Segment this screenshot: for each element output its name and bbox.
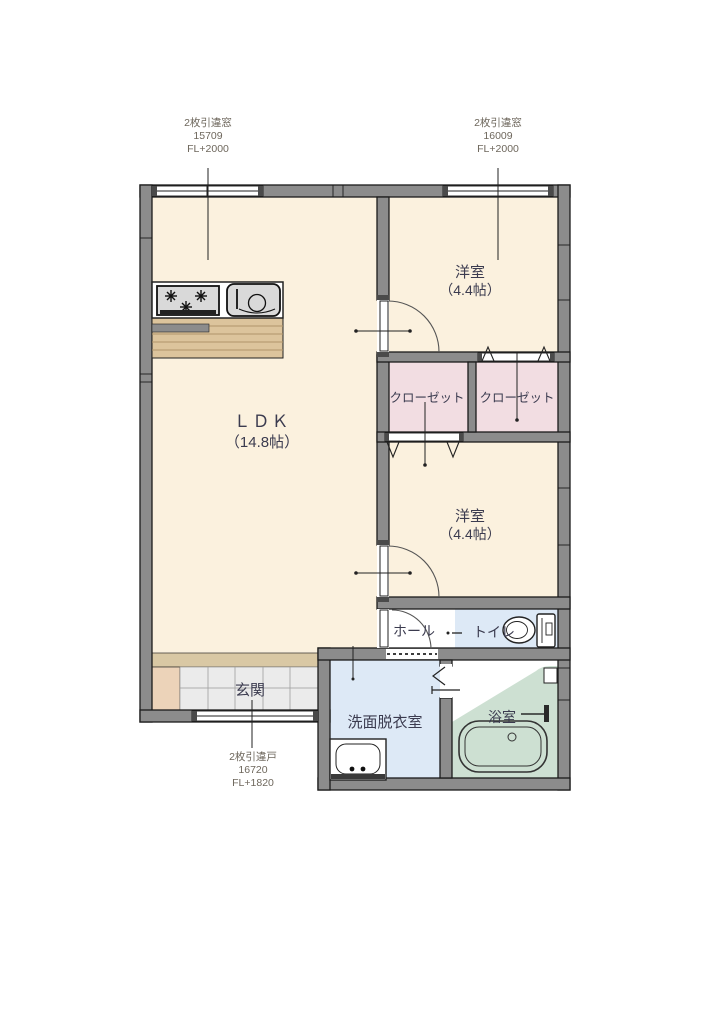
- sink-icon: [227, 284, 280, 316]
- wall-center-upper: [377, 197, 389, 300]
- closet-right-label: クローゼット: [479, 391, 554, 405]
- closet-left-label: クローゼット: [389, 391, 464, 405]
- floor-plan-page: ＬＤＫ （14.8帖） 洋室 （4.4帖） 洋室 （4.4帖） クローゼット ク…: [0, 0, 725, 1024]
- bedroom-bottom-label: 洋室: [455, 508, 485, 525]
- window-right-level: FL+2000: [477, 143, 519, 155]
- bathroom-label: 浴室: [488, 709, 516, 725]
- ldk-area-label: （14.8帖）: [225, 434, 299, 451]
- wall-washroom-top: [318, 648, 570, 660]
- kitchen-unit: [152, 282, 283, 358]
- window-left-code: 15709: [193, 130, 222, 142]
- wall-closet-divider: [468, 362, 476, 432]
- bathtub-icon: [459, 721, 547, 772]
- wall-left: [140, 185, 152, 722]
- window-right-code: 16009: [483, 130, 512, 142]
- washroom-label: 洗面脱衣室: [347, 714, 422, 731]
- entrance-step: [152, 653, 318, 667]
- floor-plan-canvas: ＬＤＫ （14.8帖） 洋室 （4.4帖） 洋室 （4.4帖） クローゼット ク…: [0, 0, 725, 1024]
- entry-door-code: 16720: [238, 764, 267, 776]
- bedroom-top-area-label: （4.4帖）: [439, 282, 500, 298]
- bath-window: [544, 668, 557, 683]
- bedroom-top-label: 洋室: [455, 264, 485, 281]
- wall-center-mid: [377, 355, 389, 545]
- toilet-label: トイレ: [473, 624, 515, 640]
- wall-hall-top: [377, 597, 570, 609]
- ldk-label: ＬＤＫ: [234, 412, 291, 431]
- window-left-type: 2枚引違窓: [184, 116, 232, 129]
- entrance-label: 玄関: [235, 682, 265, 699]
- bedroom-bottom-area-label: （4.4帖）: [439, 526, 500, 542]
- window-right-type: 2枚引違窓: [474, 116, 522, 129]
- washbasin-icon: [330, 739, 386, 780]
- entry-door-level: FL+1820: [232, 777, 274, 789]
- hall-label: ホール: [393, 623, 435, 639]
- wall-washroom-left: [318, 648, 330, 790]
- entry-door-type: 2枚引違戸: [229, 750, 277, 763]
- window-left-level: FL+2000: [187, 143, 229, 155]
- stove-icon: [157, 286, 219, 315]
- wall-bath-divider: [440, 698, 452, 778]
- wall-right: [558, 185, 570, 790]
- shoe-cabinet: [152, 667, 180, 710]
